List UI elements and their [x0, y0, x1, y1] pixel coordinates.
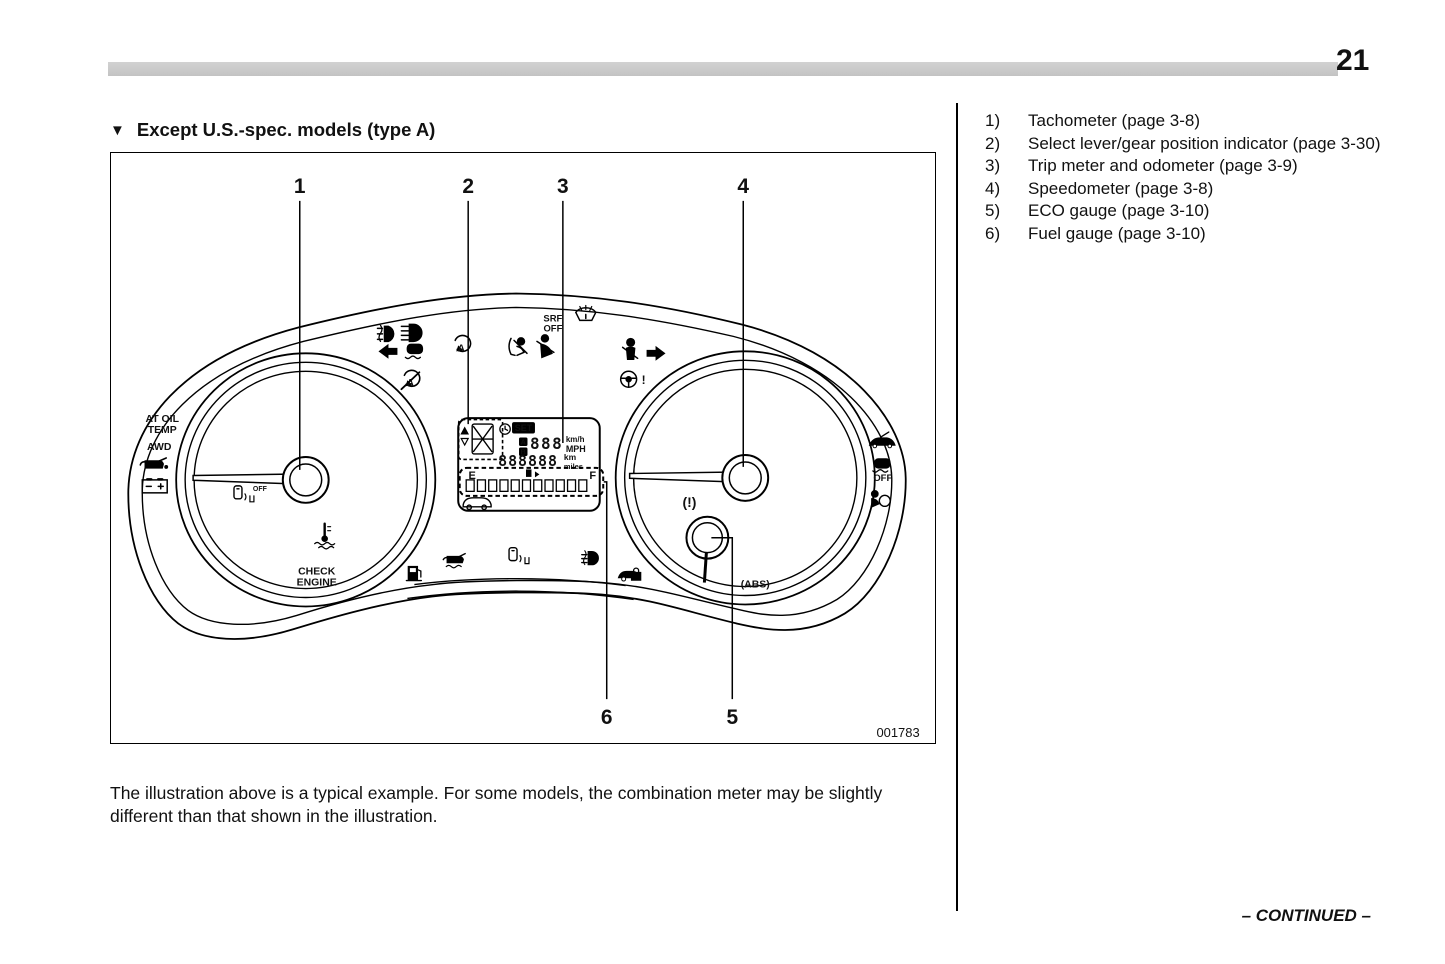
- left-turn-signal-icon: [378, 344, 397, 359]
- trip-a-label: A: [520, 438, 526, 447]
- vdc-off-label: OFF: [873, 473, 892, 484]
- legend-label: Speedometer (page 3-8): [1028, 178, 1387, 201]
- figure-caption: The illustration above is a typical exam…: [110, 782, 948, 829]
- legend-label: ECO gauge (page 3-10): [1028, 200, 1387, 223]
- legend-item-2: 2) Select lever/gear position indicator …: [985, 133, 1387, 156]
- abs-warning-icon: (ABS): [741, 580, 770, 591]
- auto-start-stop-off-icon: A: [401, 370, 419, 389]
- legend-item-5: 5) ECO gauge (page 3-10): [985, 200, 1387, 223]
- legend-number: 4): [985, 178, 1028, 201]
- legend-label: Tachometer (page 3-8): [1028, 110, 1387, 133]
- section-marker-icon: ▼: [110, 123, 125, 138]
- at-oil-temp-label-2: TEMP: [148, 425, 177, 436]
- manual-page: 21 ▼ Except U.S.-spec. models (type A): [0, 0, 1445, 964]
- header-rule: [108, 62, 1338, 76]
- oil-pressure-icon: [140, 458, 167, 468]
- speed-digits: 888: [530, 434, 563, 453]
- miles-unit: miles: [564, 462, 583, 471]
- eco-gauge: [686, 517, 728, 583]
- callout-6: 6: [601, 706, 613, 729]
- vdc-indicator-icon: [405, 344, 422, 358]
- column-divider: [956, 103, 958, 911]
- steering-warning-icon: !: [621, 371, 646, 387]
- legend-item-6: 6) Fuel gauge (page 3-10): [985, 223, 1387, 246]
- instrument-cluster-illustration: (!) (ABS): [111, 153, 935, 743]
- figure-code: 001783: [876, 725, 919, 740]
- coolant-temp-icon: [315, 524, 335, 549]
- legend-number: 1): [985, 110, 1028, 133]
- awd-label: AWD: [147, 442, 172, 453]
- lcd-display: SET A B 888 km/h MPH 888888 km miles E F: [458, 418, 603, 511]
- rear-fog-light-icon: [582, 551, 598, 565]
- cluster-figure: (!) (ABS): [110, 152, 936, 744]
- low-fuel-icon: [406, 567, 421, 581]
- continued-marker: – CONTINUED –: [1242, 906, 1371, 926]
- srf-off-label: OFF: [543, 323, 562, 334]
- callout-5: 5: [726, 706, 738, 729]
- seatbelt-warning-icon: [623, 339, 638, 360]
- fuel-full-label: F: [589, 470, 596, 482]
- door-open-icon: [870, 432, 895, 448]
- callout-2: 2: [462, 175, 474, 198]
- passenger-airbag-icon: [509, 338, 527, 355]
- airbag-warning-icon: [872, 491, 891, 507]
- immobilizer-off-icon: [234, 486, 254, 502]
- legend-number: 5): [985, 200, 1028, 223]
- legend-label: Select lever/gear position indicator (pa…: [1028, 133, 1387, 156]
- set-label: SET: [515, 423, 533, 433]
- battery-icon: [142, 479, 167, 492]
- km-unit: km: [564, 452, 576, 462]
- callout-1: 1: [294, 175, 306, 198]
- section-title: Except U.S.-spec. models (type A): [137, 119, 435, 141]
- legend-item-4: 4) Speedometer (page 3-8): [985, 178, 1387, 201]
- legend-item-3: 3) Trip meter and odometer (page 3-9): [985, 155, 1387, 178]
- legend-number: 3): [985, 155, 1028, 178]
- check-engine-label-2: ENGINE: [297, 578, 337, 589]
- speedometer-gauge: [616, 351, 875, 604]
- svg-text:!: !: [642, 373, 646, 387]
- immobilizer-off-label: OFF: [253, 486, 267, 493]
- legend-label: Fuel gauge (page 3-10): [1028, 223, 1387, 246]
- security-indicator-icon: [619, 568, 641, 581]
- fog-light-icon: [377, 325, 393, 341]
- legend-number: 6): [985, 223, 1028, 246]
- svg-text:A: A: [458, 343, 465, 354]
- page-number: 21: [1336, 44, 1369, 78]
- at-oil-temp-label-1: AT OIL: [145, 414, 179, 425]
- legend-label: Trip meter and odometer (page 3-9): [1028, 155, 1387, 178]
- check-engine-label-1: CHECK: [298, 567, 336, 578]
- legend-list: 1) Tachometer (page 3-8) 2) Select lever…: [985, 110, 1387, 245]
- washer-fluid-icon: [576, 305, 596, 320]
- oil-temp-icon: [443, 554, 465, 568]
- eco-gauge-needle: [704, 553, 706, 583]
- seatbelt-pretensioner-icon: [537, 335, 554, 357]
- legend-number: 2): [985, 133, 1028, 156]
- section-heading: ▼ Except U.S.-spec. models (type A): [110, 119, 435, 141]
- callout-3: 3: [557, 175, 569, 198]
- right-turn-signal-icon: [647, 346, 666, 361]
- legend-item-1: 1) Tachometer (page 3-8): [985, 110, 1387, 133]
- high-beam-icon: [401, 324, 421, 341]
- brake-warning-icon: (!): [682, 494, 696, 510]
- kmh-unit: km/h: [566, 435, 585, 444]
- key-indicator-icon: [509, 548, 529, 564]
- callout-4: 4: [737, 175, 749, 198]
